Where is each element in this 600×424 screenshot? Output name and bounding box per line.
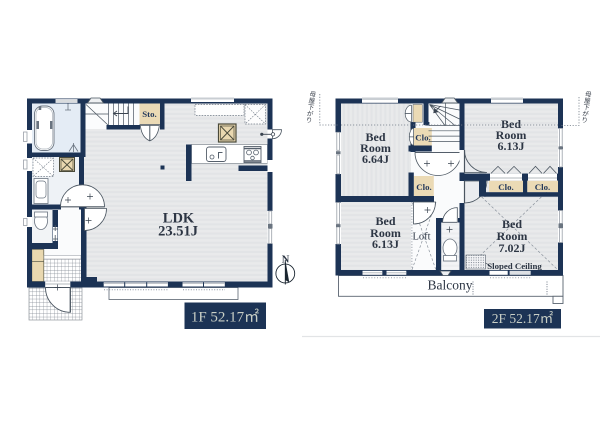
svg-text:6.64J: 6.64J (362, 152, 389, 166)
svg-text:23.51J: 23.51J (158, 224, 198, 240)
svg-text:N: N (282, 255, 290, 266)
svg-text:Clo.: Clo. (415, 133, 430, 143)
svg-text:2F 52.17㎡: 2F 52.17㎡ (492, 311, 554, 326)
svg-text:1F 52.17㎡: 1F 52.17㎡ (191, 309, 259, 326)
svg-text:Clo.: Clo. (498, 182, 513, 192)
svg-text:6.13J: 6.13J (372, 237, 399, 251)
svg-text:7.02J: 7.02J (499, 241, 526, 255)
svg-text:6.13J: 6.13J (498, 139, 525, 153)
svg-text:Sto.: Sto. (142, 109, 156, 119)
svg-text:Balcony: Balcony (428, 278, 473, 293)
svg-text:Loft: Loft (412, 232, 430, 243)
svg-text:Clo.: Clo. (416, 182, 431, 192)
svg-text:Clo.: Clo. (535, 182, 550, 192)
svg-text:Sloped Ceiling: Sloped Ceiling (487, 261, 542, 271)
